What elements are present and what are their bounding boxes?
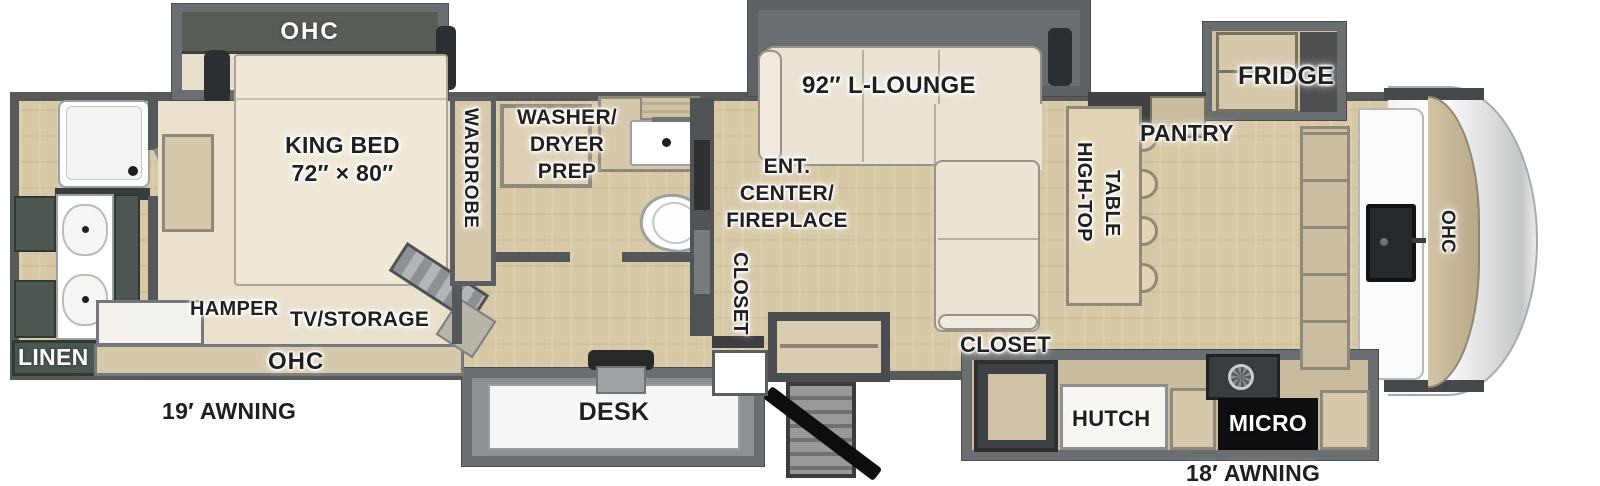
ent-center-tv-icon bbox=[694, 140, 710, 210]
hall-closet-shelf bbox=[712, 336, 764, 348]
lounge-window-icon bbox=[1048, 28, 1072, 86]
kitchen-sink bbox=[1366, 204, 1416, 282]
floorplan-canvas: OHC KING BED 72″ × 80″ WARDROBE HAMPER T… bbox=[0, 0, 1600, 486]
micro-label: MICRO bbox=[1218, 410, 1318, 437]
washer-label-line2: DRYER bbox=[492, 133, 642, 157]
kitchen-faucet-icon bbox=[1412, 238, 1426, 243]
awning-left-label: 19′ AWNING bbox=[162, 398, 296, 425]
wardrobe-wall-lower bbox=[452, 286, 462, 344]
ent-center-wall bbox=[690, 98, 714, 336]
hutch-label: HUTCH bbox=[1072, 406, 1151, 432]
sofa-armrest-left bbox=[758, 50, 782, 162]
washer-label-line3: PREP bbox=[492, 160, 642, 184]
linen-label: LINEN bbox=[18, 344, 89, 371]
kitchen-sink-drain bbox=[1380, 238, 1388, 246]
bedroom-window-left-icon bbox=[204, 50, 230, 106]
sofa-chaise bbox=[934, 160, 1040, 332]
king-bed-blanket-seam bbox=[236, 98, 446, 100]
hightop-label-line1: HIGH-TOP bbox=[1072, 142, 1095, 242]
bedroom-ohc-label: OHC bbox=[182, 18, 438, 46]
bath2-sink-drain bbox=[662, 138, 671, 147]
king-bed-label-line1: KING BED bbox=[250, 132, 435, 159]
bedroom-dresser-left bbox=[162, 134, 214, 232]
bath-bedroom-wall-upper bbox=[148, 92, 158, 150]
hall-end-table bbox=[712, 350, 768, 396]
bath2-bottom-wall-left bbox=[496, 252, 570, 262]
ent-label-line2: CENTER/ bbox=[712, 182, 862, 206]
bath-sink-bottom-drain bbox=[82, 296, 89, 303]
kitchen-closet-inner bbox=[988, 374, 1046, 440]
entry-platform-step-line bbox=[780, 344, 878, 348]
kitchen-closet-label: CLOSET bbox=[960, 332, 1051, 358]
sofa-chaise-armrest bbox=[938, 314, 1038, 330]
bath-cabinet-lower bbox=[14, 280, 56, 338]
tv-storage-label: TV/STORAGE bbox=[290, 308, 429, 332]
pantry-label: PANTRY bbox=[1140, 120, 1234, 147]
washer-label-line1: WASHER/ bbox=[492, 106, 642, 130]
front-ohc-label: OHC bbox=[1436, 210, 1458, 253]
fridge-label: FRIDGE bbox=[1238, 62, 1334, 91]
desk-label: DESK bbox=[488, 398, 740, 427]
hamper-box bbox=[96, 300, 204, 346]
ent-label-line3: FIREPLACE bbox=[712, 209, 862, 233]
shower-drain-icon bbox=[128, 166, 138, 176]
bath-sink-top-drain bbox=[82, 226, 89, 233]
stove-burner-icon bbox=[1228, 364, 1254, 390]
ent-label-line1: ENT. bbox=[712, 155, 862, 179]
awning-right-label: 18′ AWNING bbox=[1186, 460, 1320, 486]
king-bed-label-line2: 72″ × 80″ bbox=[250, 160, 435, 187]
kitchen-cabinet-right bbox=[1320, 390, 1370, 450]
bedroom-dresser-ohc-label: OHC bbox=[268, 348, 324, 376]
kitchen-side-cabinet bbox=[1300, 126, 1350, 370]
hamper-label: HAMPER bbox=[190, 298, 278, 321]
sofa-chaise-seam-1 bbox=[938, 238, 1038, 240]
hall-closet-label: CLOSET bbox=[728, 252, 751, 335]
desk-chair-seat bbox=[596, 366, 646, 394]
lounge-label: 92″ L-LOUNGE bbox=[802, 72, 976, 100]
wardrobe-label: WARDROBE bbox=[459, 108, 481, 229]
bath-cabinet-upper bbox=[14, 196, 56, 252]
ent-center-fireplace-icon bbox=[694, 230, 710, 294]
sofa-seam-1 bbox=[862, 50, 864, 162]
hightop-label-line2: TABLE bbox=[1100, 170, 1123, 237]
